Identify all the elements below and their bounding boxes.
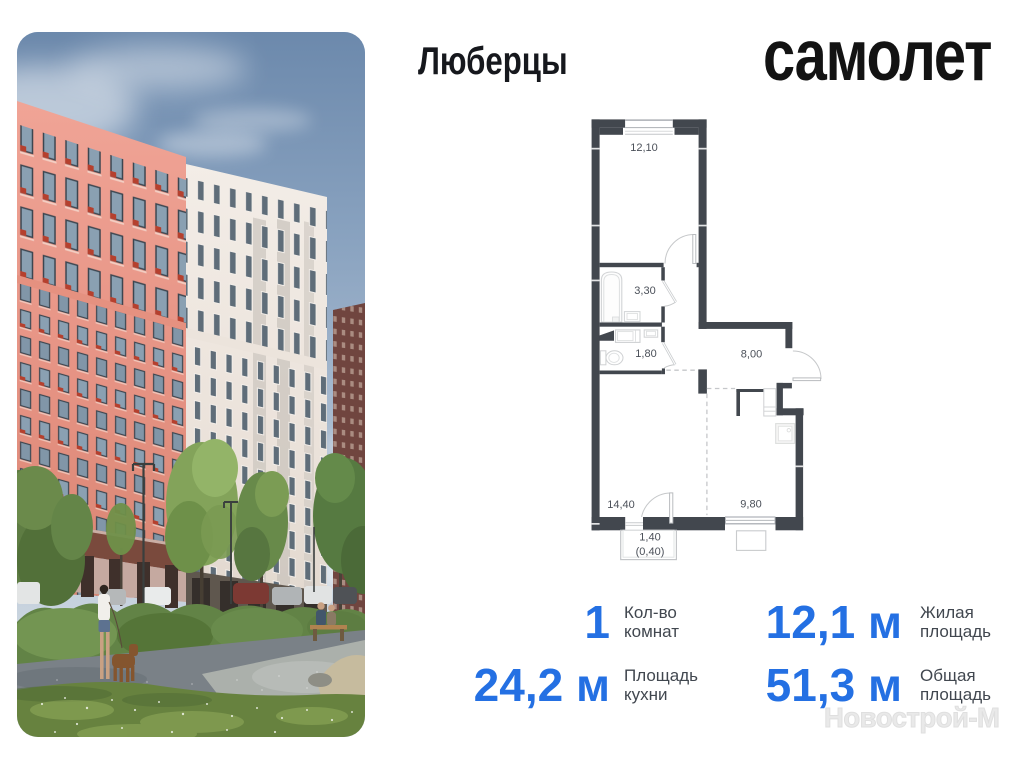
svg-text:3,30: 3,30 bbox=[634, 285, 655, 297]
svg-text:1,40: 1,40 bbox=[639, 532, 660, 544]
svg-text:1,80: 1,80 bbox=[635, 348, 656, 360]
svg-text:14,40: 14,40 bbox=[607, 499, 635, 511]
svg-text:8,00: 8,00 bbox=[741, 349, 762, 361]
svg-text:(0,40): (0,40) bbox=[636, 546, 665, 558]
svg-text:9,80: 9,80 bbox=[740, 499, 761, 511]
svg-text:12,10: 12,10 bbox=[630, 142, 658, 154]
